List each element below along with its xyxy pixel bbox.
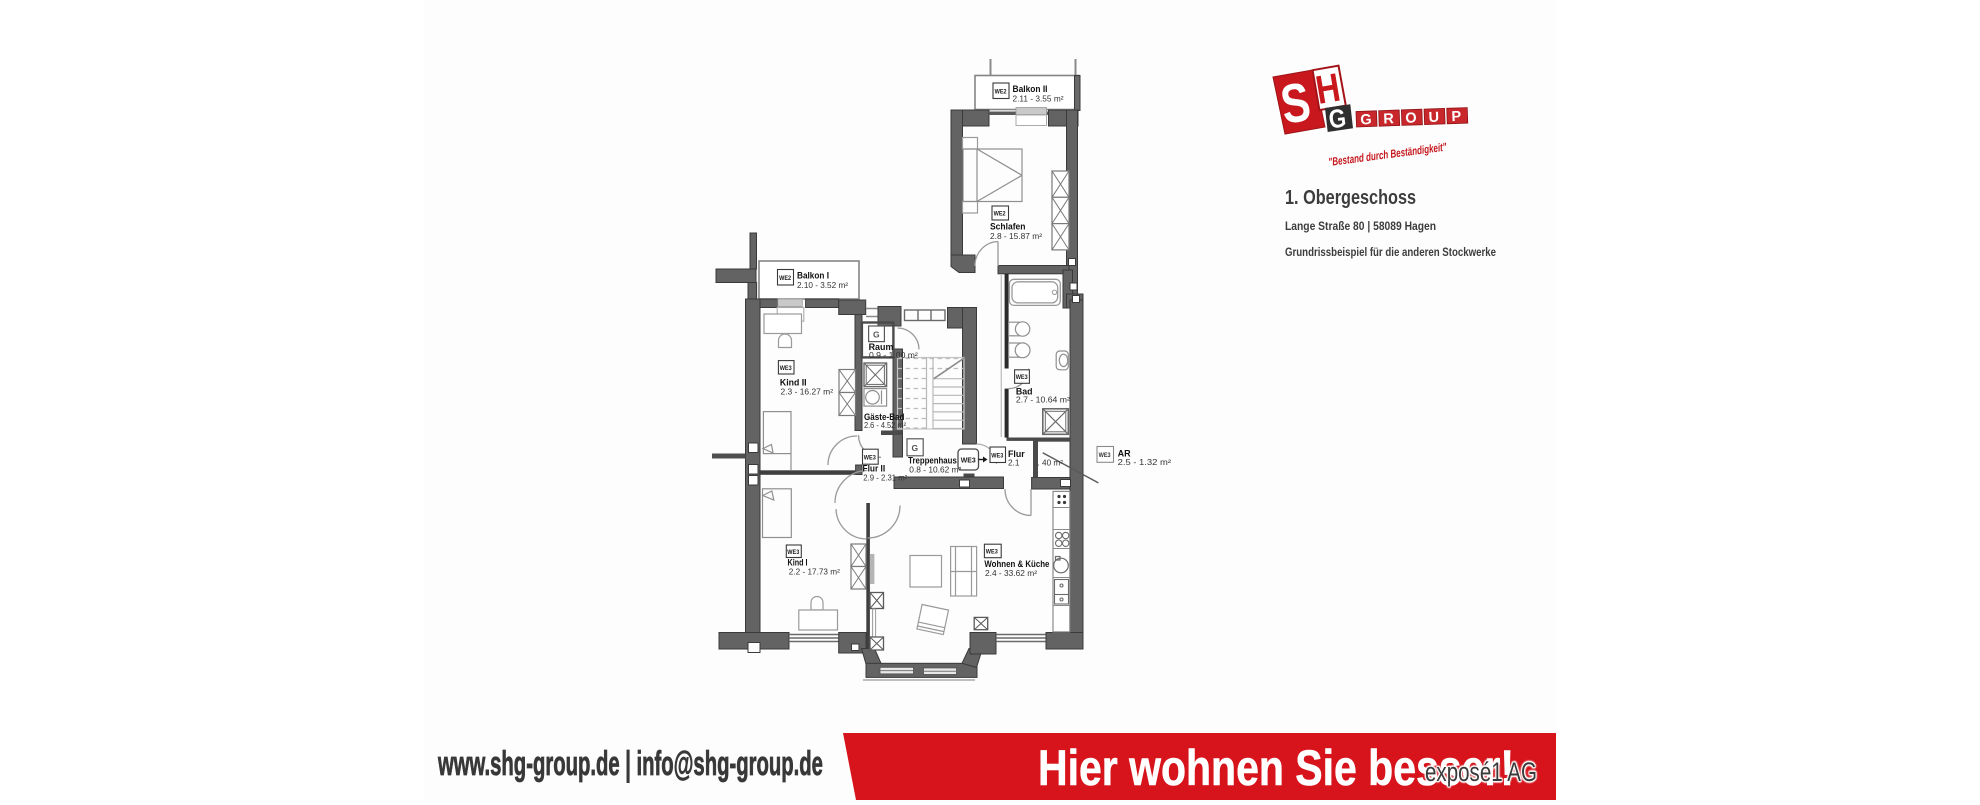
svg-text:WE3: WE3 — [1016, 374, 1028, 381]
svg-text:Kind II: Kind II — [780, 378, 807, 388]
svg-text:. 40 m²: . 40 m² — [1038, 459, 1064, 468]
svg-text:U: U — [1428, 110, 1439, 126]
svg-text:WE3: WE3 — [986, 549, 998, 556]
svg-text:P: P — [1451, 109, 1462, 125]
svg-text:2.3 - 16.27 m²: 2.3 - 16.27 m² — [781, 388, 834, 397]
svg-text:R: R — [1383, 111, 1395, 127]
svg-text:G: G — [873, 330, 880, 340]
svg-text:G: G — [912, 443, 919, 453]
svg-text:Wohnen & Küche: Wohnen & Küche — [984, 559, 1049, 569]
svg-text:WE3: WE3 — [787, 549, 799, 556]
svg-text:AR: AR — [1118, 449, 1131, 459]
svg-text:0.8 - 10.62 m²: 0.8 - 10.62 m² — [909, 466, 961, 475]
svg-text:Flur: Flur — [1008, 449, 1025, 459]
svg-text:2.6 - 4.52 m²: 2.6 - 4.52 m² — [864, 421, 906, 430]
svg-text:2.7 - 10.64 m²: 2.7 - 10.64 m² — [1016, 396, 1070, 405]
svg-text:Kind I: Kind I — [788, 558, 808, 568]
svg-text:2.9 - 2.31 m²: 2.9 - 2.31 m² — [863, 474, 907, 483]
svg-text:0.9 - 1.00 m²: 0.9 - 1.00 m² — [869, 351, 918, 360]
svg-text:2.4 - 33.62 m²: 2.4 - 33.62 m² — [985, 569, 1037, 578]
svg-text:G: G — [1360, 112, 1372, 128]
svg-text:"Bestand durch Beständigkeit": "Bestand durch Beständigkeit" — [1328, 141, 1448, 168]
svg-text:2.5 - 1.32 m²: 2.5 - 1.32 m² — [1118, 458, 1172, 467]
svg-text:WE3: WE3 — [1099, 452, 1111, 459]
svg-text:O: O — [1405, 110, 1417, 126]
svg-text:WE3: WE3 — [780, 365, 792, 372]
svg-text:2.1: 2.1 — [1008, 459, 1020, 468]
svg-text:WE3: WE3 — [991, 453, 1003, 460]
svg-text:WE3: WE3 — [961, 458, 976, 465]
svg-text:Flur II: Flur II — [863, 464, 886, 474]
svg-text:2.2 - 17.73 m²: 2.2 - 17.73 m² — [789, 568, 840, 577]
svg-text:Treppenhaus: Treppenhaus — [908, 456, 957, 466]
svg-text:WE3: WE3 — [864, 455, 876, 462]
